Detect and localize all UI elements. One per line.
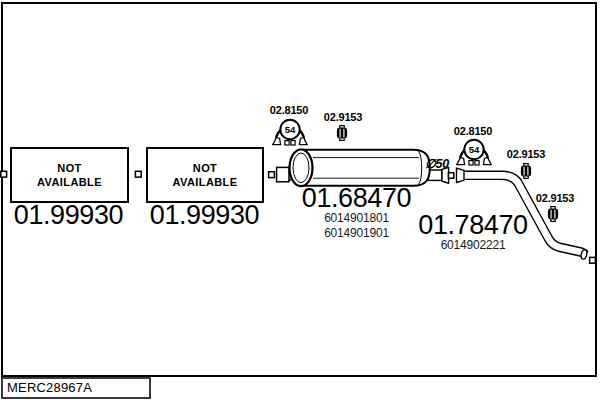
connector-square	[269, 172, 275, 178]
part-number-muffler[interactable]: 01.68470	[294, 185, 419, 211]
exhaust-diagram-page: 54	[0, 0, 600, 400]
hanger-icon	[337, 126, 347, 141]
connector-square	[135, 171, 141, 177]
hanger-icon	[548, 207, 558, 222]
muffler-drawing	[290, 150, 430, 187]
connector-square	[590, 257, 596, 263]
part-number-tail-pipe[interactable]: 01.78470	[410, 212, 536, 238]
hanger-number-label: 02.9153	[322, 111, 364, 123]
oe-ref: 6014901901	[294, 226, 419, 241]
clamp-icon	[457, 140, 491, 165]
tail-pipe-bell	[457, 168, 465, 182]
hanger-number-label: 02.9153	[505, 148, 547, 160]
oe-ref: 6014902221	[410, 238, 536, 253]
connector-square	[448, 173, 453, 178]
diagram-code-box: MERC28967A	[1, 377, 151, 399]
oe-ref: 6014901801	[294, 211, 419, 226]
hanger-number-label: 02.9153	[534, 192, 576, 204]
diagram-code: MERC28967A	[3, 380, 92, 396]
clamp-number-label: 02.8150	[452, 125, 494, 137]
part-number-mid-pipe[interactable]: 01.99930	[143, 202, 266, 228]
not-available-box-2: NOT AVAILABLE	[146, 147, 264, 203]
diameter-label: ∅50	[425, 156, 449, 171]
not-available-box-1: NOT AVAILABLE	[10, 147, 129, 203]
clamp-number-label: 02.8150	[268, 104, 310, 116]
not-available-text: NOT	[57, 161, 81, 175]
clamp-icon	[273, 120, 307, 145]
connector-square	[1, 171, 7, 177]
not-available-text: AVAILABLE	[173, 175, 238, 189]
not-available-text: AVAILABLE	[37, 175, 102, 189]
part-number-front-pipe[interactable]: 01.99930	[7, 202, 130, 228]
hanger-icon	[521, 164, 531, 179]
not-available-text: NOT	[193, 161, 217, 175]
